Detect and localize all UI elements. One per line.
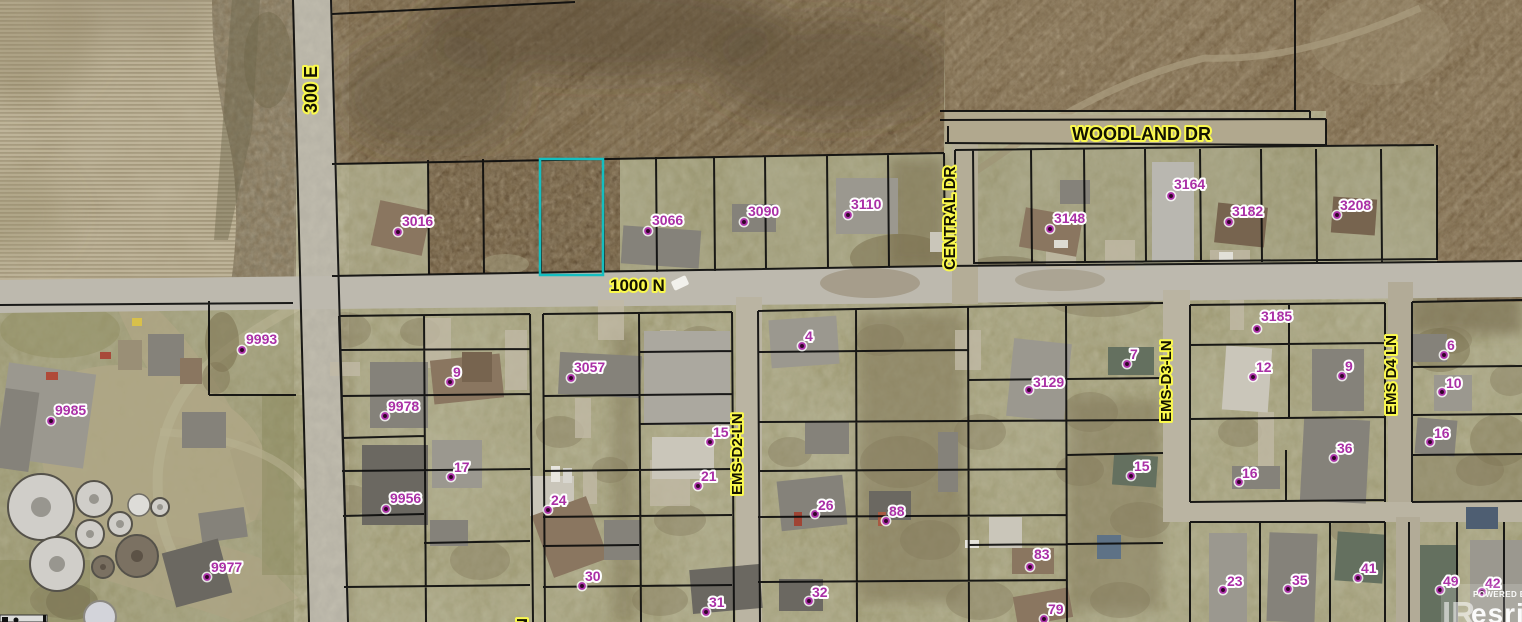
svg-text:WOODLAND DR: WOODLAND DR: [1072, 124, 1211, 144]
svg-text:79: 79: [1048, 601, 1064, 617]
svg-text:EMS-D2-LN: EMS-D2-LN: [729, 413, 746, 495]
svg-text:83: 83: [1034, 546, 1050, 562]
svg-text:16: 16: [1434, 425, 1450, 441]
svg-text:N: N: [514, 618, 531, 622]
svg-text:21: 21: [701, 468, 717, 484]
svg-text:9985: 9985: [55, 402, 86, 418]
svg-text:35: 35: [1292, 572, 1308, 588]
svg-text:88: 88: [889, 503, 905, 519]
svg-text:9993: 9993: [246, 331, 277, 347]
svg-text:3066: 3066: [652, 212, 683, 228]
svg-text:9: 9: [1345, 358, 1353, 374]
svg-text:3208: 3208: [1340, 197, 1371, 213]
svg-text:EMS-D3-LN: EMS-D3-LN: [1158, 340, 1175, 422]
svg-text:32: 32: [812, 584, 828, 600]
svg-text:30: 30: [585, 568, 601, 584]
svg-text:3016: 3016: [402, 213, 433, 229]
svg-text:3164: 3164: [1174, 176, 1205, 192]
svg-text:EMS D4 LN: EMS D4 LN: [1383, 335, 1400, 415]
svg-text:9977: 9977: [211, 559, 242, 575]
svg-text:26: 26: [818, 497, 834, 513]
svg-text:300 E: 300 E: [301, 66, 321, 113]
svg-text:15: 15: [1134, 458, 1150, 474]
svg-text:10: 10: [1446, 375, 1462, 391]
svg-text:23: 23: [1227, 573, 1243, 589]
svg-text:3182: 3182: [1232, 203, 1263, 219]
svg-text:17: 17: [454, 459, 470, 475]
svg-text:1000 N: 1000 N: [610, 276, 665, 295]
svg-text:3129: 3129: [1033, 374, 1064, 390]
svg-text:3148: 3148: [1054, 210, 1085, 226]
svg-text:9978: 9978: [388, 398, 419, 414]
svg-text:41: 41: [1361, 560, 1377, 576]
svg-text:3110: 3110: [851, 196, 882, 212]
svg-text:9956: 9956: [390, 490, 421, 506]
svg-text:esri: esri: [1471, 598, 1522, 622]
svg-text:16: 16: [1242, 465, 1258, 481]
svg-text:4: 4: [805, 328, 813, 344]
svg-text:9: 9: [453, 364, 461, 380]
svg-text:3185: 3185: [1261, 308, 1292, 324]
svg-text:24: 24: [551, 492, 567, 508]
svg-text:3057: 3057: [574, 359, 605, 375]
svg-text:12: 12: [1256, 359, 1272, 375]
svg-text:31: 31: [709, 594, 725, 610]
svg-text:3090: 3090: [748, 203, 779, 219]
svg-text:6: 6: [1447, 337, 1455, 353]
svg-text:15: 15: [713, 424, 729, 440]
svg-text:36: 36: [1337, 440, 1353, 456]
svg-text:CENTRAL DR: CENTRAL DR: [942, 166, 959, 270]
svg-text:7: 7: [1130, 346, 1138, 362]
